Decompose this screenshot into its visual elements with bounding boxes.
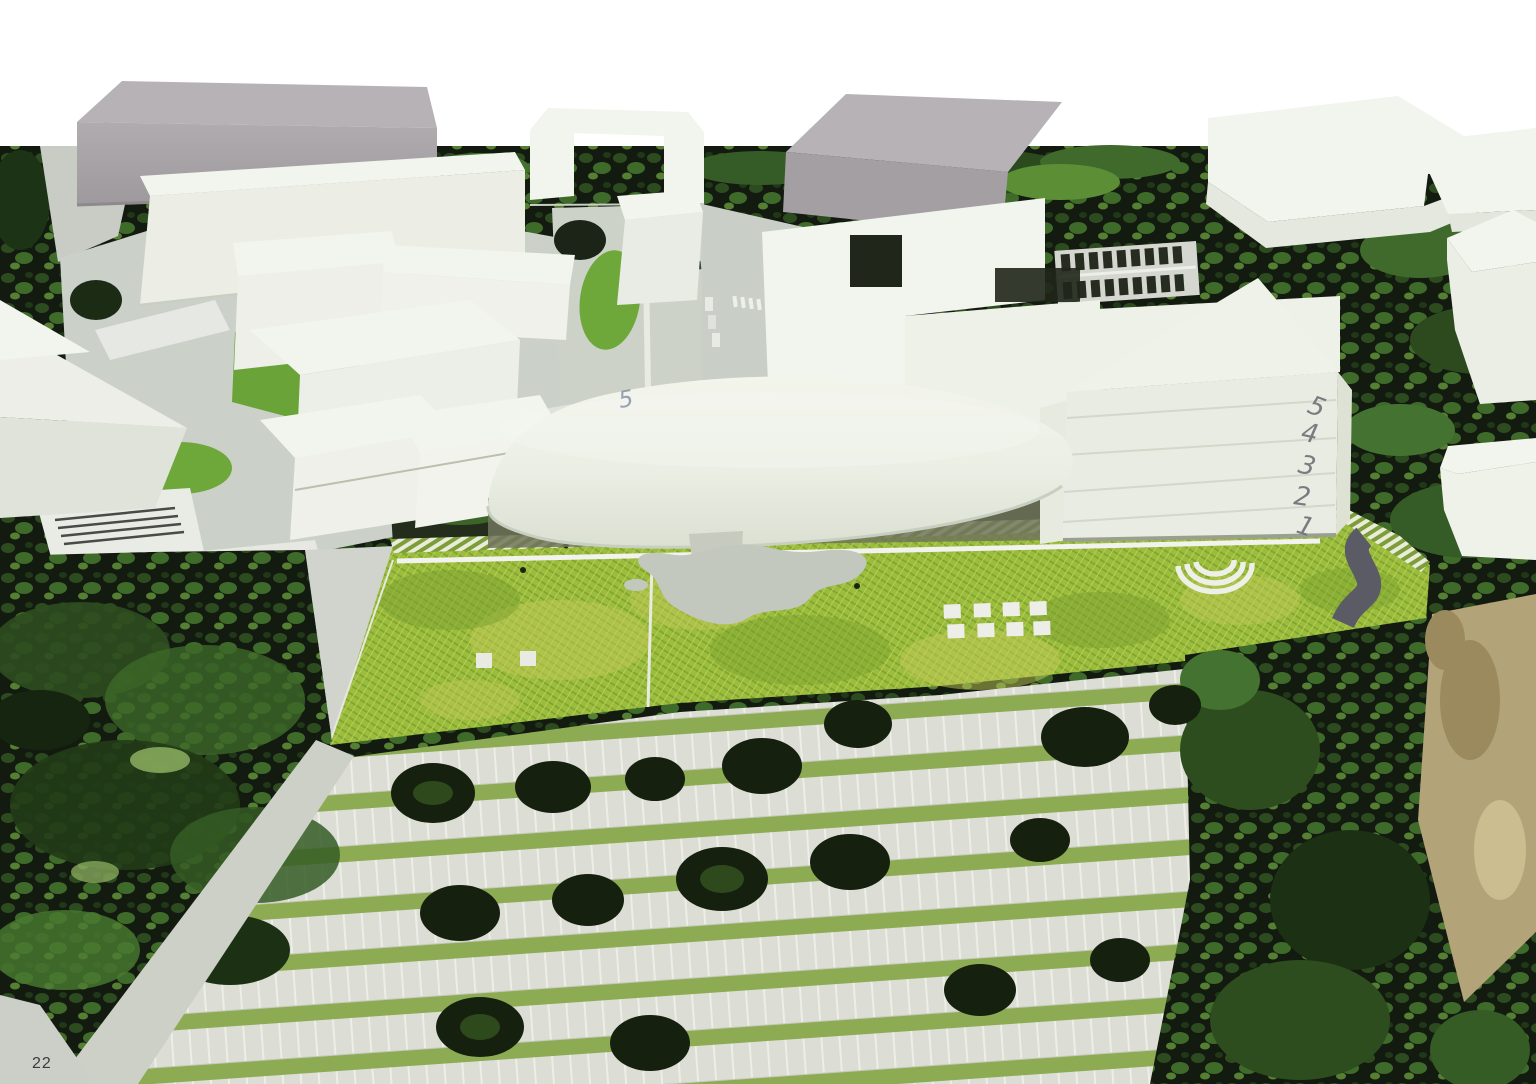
small-square-2 [520, 651, 536, 666]
tree-area-bottom-right [1150, 594, 1536, 1084]
model-photo: 5 4 3 2 1 5 22 [0, 0, 1536, 1084]
plaza-blob-puddle [624, 579, 648, 591]
block-small-center [617, 190, 703, 305]
tower-body [1063, 372, 1338, 540]
page-number: 22 [32, 1055, 52, 1072]
small-square-1 [476, 653, 492, 668]
portfolio-page: 5 4 3 2 1 5 22 [0, 0, 1536, 1084]
